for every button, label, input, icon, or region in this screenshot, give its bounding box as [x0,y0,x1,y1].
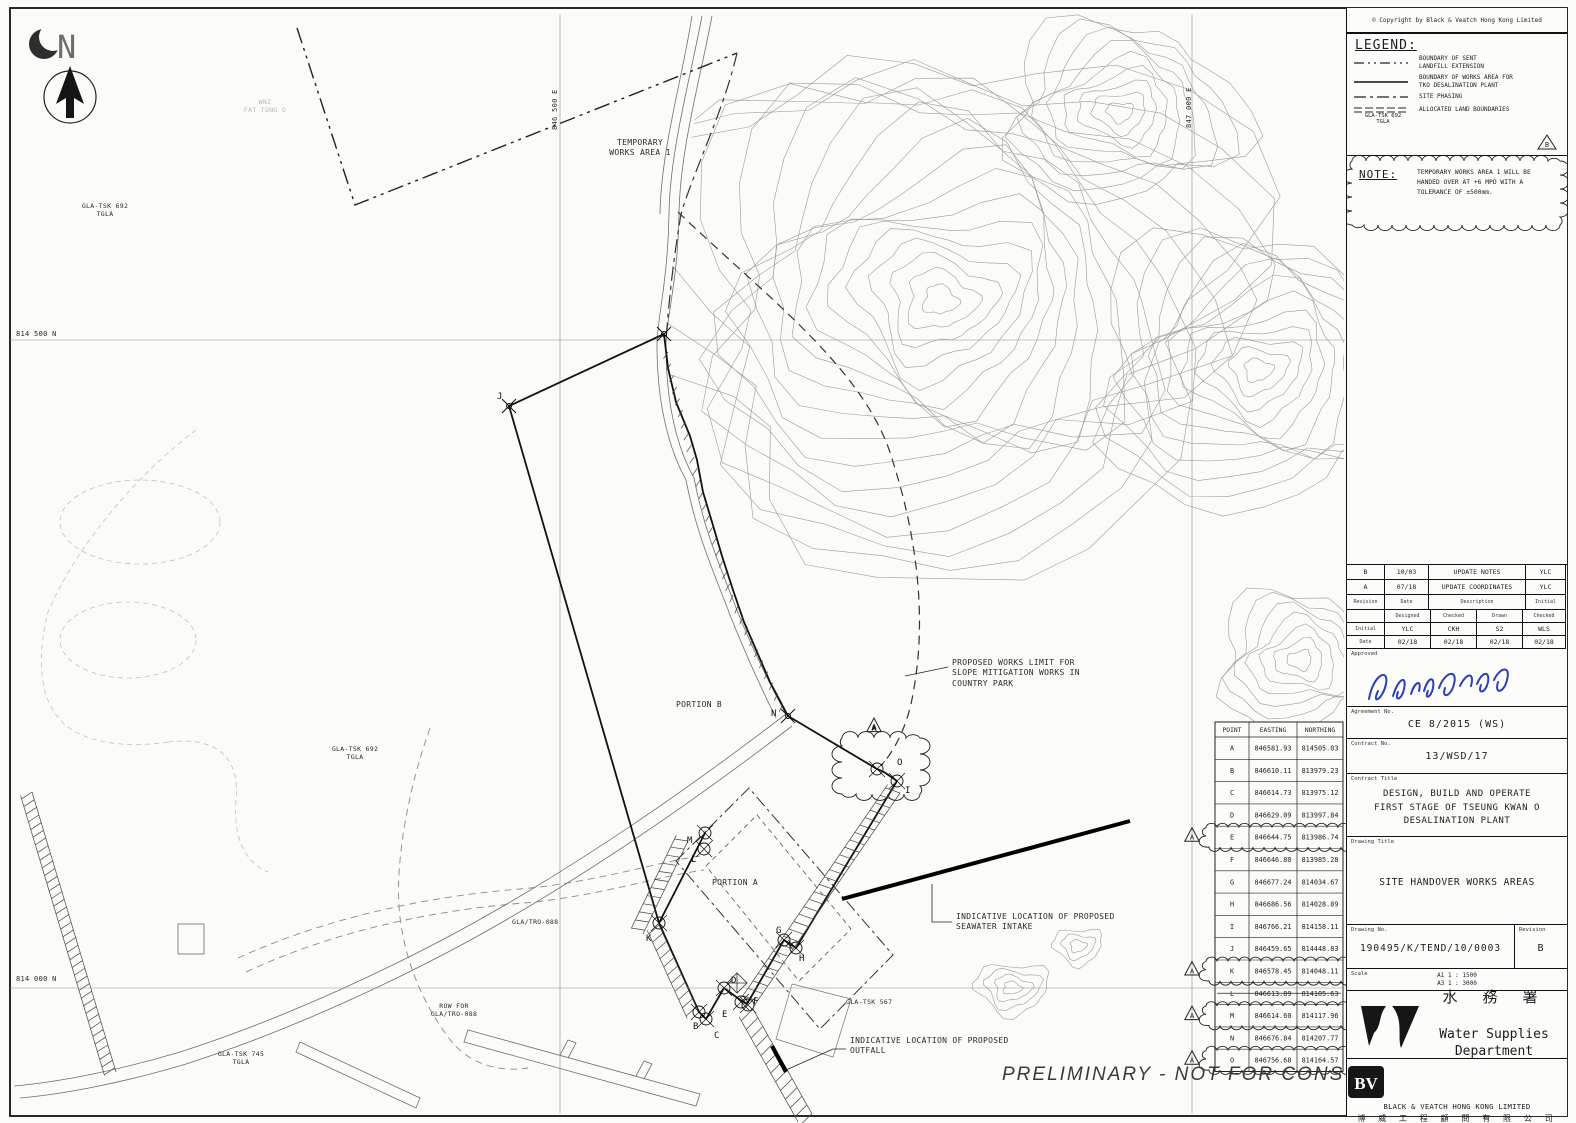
point-letter-I: I [905,786,910,796]
wsd-name: Water Supplies Department [1421,1027,1567,1061]
svg-text:J: J [1230,945,1234,953]
contract-title-section: Contract Title DESIGN, BUILD AND OPERATE… [1347,774,1567,837]
svg-text:846677.24: 846677.24 [1255,878,1292,886]
svg-text:813997.84: 813997.84 [1302,811,1339,819]
drawing-title-section: Drawing Title SITE HANDOVER WORKS AREAS [1347,837,1567,925]
dc-cell: S2 [1477,623,1523,636]
svg-text:A: A [1190,833,1195,842]
svg-text:846766.21: 846766.21 [1255,923,1292,931]
drawing-no-label: Drawing No. [1351,927,1387,933]
label-outfall: INDICATIVE LOCATION OF PROPOSED OUTFALL [850,1036,1009,1057]
survey-grid [10,14,1345,1114]
legend-item-label: BOUNDARY OF WORKS AREA FOR TKO DESALINAT… [1419,74,1513,89]
note-section: NOTE: TEMPORARY WORKS AREA 1 WILL BE HAN… [1347,156,1567,234]
svg-text:A: A [1190,966,1195,975]
legend-item-label: ALLOCATED LAND BOUNDARIES [1419,106,1509,114]
svg-text:A: A [1230,744,1234,752]
drawing-no-section: Drawing No. 190495/K/TEND/10/0003 Revisi… [1347,925,1567,969]
dc-header: Drawn [1477,610,1523,623]
svg-text:D: D [1230,811,1234,819]
rev-header: Date [1385,595,1429,610]
agreement-no: CE 8/2015 (WS) [1347,719,1567,730]
svg-text:846644.75: 846644.75 [1255,834,1292,842]
coast-roads [14,16,792,1098]
legend-item-label: BOUNDARY OF SENT LANDFILL EXTENSION [1419,55,1484,70]
dc-header: Checked [1431,610,1477,623]
rev-cell: YLC [1526,580,1566,595]
point-letter-C: C [714,1031,719,1041]
dash-dot-swatch [1353,93,1409,101]
revision-triangle-icon: B [1537,133,1557,151]
indicative-leaders [772,667,1130,1072]
blank-section [1347,234,1567,564]
svg-text:M: M [1230,1012,1234,1020]
point-letter-B: B [693,1022,698,1032]
svg-text:E: E [1230,834,1234,842]
svg-text:846614.73: 846614.73 [1255,789,1292,797]
agreement-label: Agreement No. [1351,709,1394,715]
wsd-chinese: 水 務 署 [1421,988,1567,1008]
svg-text:813985.28: 813985.28 [1302,856,1339,864]
site-plan-map: A POINTEASTINGNORTHINGA846581.93814505.0… [0,0,1576,1123]
svg-text:813986.74: 813986.74 [1302,834,1339,842]
svg-text:814448.83: 814448.83 [1302,945,1339,953]
dc-header: Checked [1523,610,1566,623]
point-letter-D: D [731,976,736,986]
svg-text:846610.11: 846610.11 [1255,767,1292,775]
point-letter-G: G [776,926,781,936]
label-seawater-intake: INDICATIVE LOCATION OF PROPOSED SEAWATER… [956,912,1115,933]
svg-text:NORTHING: NORTHING [1305,727,1336,734]
svg-text:G: G [1230,878,1234,886]
svg-text:846676.84: 846676.84 [1255,1034,1292,1042]
legend-item: SITE PHASING [1353,93,1567,101]
coordinate-table: POINTEASTINGNORTHINGA846581.93814505.03B… [1185,722,1359,1074]
legend-item-label: SITE PHASING [1419,93,1462,101]
grid-label-847000e: 847 000 E [1185,87,1194,128]
dc-label: Initial [1347,623,1385,636]
title-block-panel: © Copyright by Black & Veatch Hong Kong … [1346,8,1567,1116]
legend-item: BOUNDARY OF WORKS AREA FOR TKO DESALINAT… [1353,74,1567,89]
svg-text:814034.67: 814034.67 [1302,878,1339,886]
agreement-section: Agreement No. CE 8/2015 (WS) [1347,707,1567,739]
label-gla-tro-088: GLA/TRO-088 [512,918,558,926]
svg-text:EASTING: EASTING [1260,727,1287,734]
contract-no-section: Contract No. 13/WSD/17 [1347,739,1567,774]
rev-cell: UPDATE COORDINATES [1429,580,1526,595]
contract-no: 13/WSD/17 [1347,751,1567,762]
rev-header: Description [1429,595,1526,610]
svg-text:L: L [1230,990,1234,998]
point-letter-E: E [722,1010,727,1020]
label-gla692-topleft: GLA-TSK 692 TGLA [60,202,150,219]
label-temporary-works-area: TEMPORARY WORKS AREA 1 [585,138,695,159]
note-title: NOTE: [1359,168,1397,181]
svg-text:813975.12: 813975.12 [1302,789,1339,797]
point-letter-K: K [646,934,651,944]
dc-cell: 02/18 [1477,636,1523,649]
revision-label: Revision [1519,927,1546,933]
drawing-no: 190495/K/TEND/10/0003 [1347,943,1514,954]
revision-entries-table: B 10/03 UPDATE NOTES YLC A 07/18 UPDATE … [1347,564,1567,610]
wsd-section: 水 務 署 Water Supplies Department [1347,991,1567,1059]
grid-label-814000n: 814 000 N [16,975,57,984]
dc-cell: WLS [1523,623,1566,636]
legend-title: LEGEND: [1355,38,1567,53]
svg-text:814207.77: 814207.77 [1302,1034,1339,1042]
svg-text:814105.63: 814105.63 [1302,990,1339,998]
wsd-logo [1359,1000,1421,1050]
legend-section: LEGEND: BOUNDARY OF SENT LANDFILL EXTENS… [1347,38,1567,156]
svg-text:A: A [872,723,877,732]
svg-text:846614.60: 846614.60 [1255,1012,1292,1020]
approved-label: Approved [1351,651,1378,657]
north-letter: N [57,28,76,66]
dc-cell: CKH [1431,623,1477,636]
rev-cell: 10/03 [1385,565,1429,580]
rev-cell: 07/18 [1385,580,1429,595]
grid-label-814500n: 814 500 N [16,330,57,339]
svg-text:814505.03: 814505.03 [1302,744,1339,752]
drawing-title: SITE HANDOVER WORKS AREAS [1347,877,1567,888]
svg-text:846629.09: 846629.09 [1255,811,1292,819]
approved-section: Approved [1347,649,1567,707]
svg-text:846646.80: 846646.80 [1255,856,1292,864]
dc-cell: 02/18 [1523,636,1566,649]
svg-text:814028.89: 814028.89 [1302,901,1339,909]
copyright-bar: © Copyright by Black & Veatch Hong Kong … [1347,8,1567,34]
rev-cell: A [1347,580,1385,595]
svg-text:814158.11: 814158.11 [1302,923,1339,931]
bv-chinese: 博 威 工 程 顧 問 有 限 公 司 [1347,1113,1567,1123]
label-gla-tsk-745: GLA-TSK 745 TGLA [196,1050,286,1067]
survey-point-markers [502,327,905,1027]
label-row-for-gla-tro: ROW FOR GLA/TRO-088 [408,1002,500,1019]
dc-cell: 02/18 [1431,636,1477,649]
point-letter-N: N [771,709,776,719]
dc-cell: YLC [1385,623,1431,636]
dash-dot-dot-swatch [1353,59,1409,67]
svg-text:B: B [1545,141,1549,149]
svg-text:POINT: POINT [1223,727,1242,734]
solid-line-swatch [1353,78,1409,86]
svg-text:C: C [1230,789,1234,797]
drawing-title-label: Drawing Title [1351,839,1394,845]
drawing-sheet: A POINTEASTINGNORTHINGA846581.93814505.0… [0,0,1576,1123]
svg-text:846581.93: 846581.93 [1255,744,1292,752]
approval-signature [1361,659,1551,705]
label-portion-a: PORTION A [712,878,758,888]
designer-table: Designed Checked Drawn Checked Initial Y… [1347,610,1567,649]
svg-text:814117.96: 814117.96 [1302,1012,1339,1020]
point-letter-F: F [753,997,758,1007]
rev-cell: UPDATE NOTES [1429,565,1526,580]
point-letter-O: O [897,758,902,768]
label-fat-tong-o: WNZ FAT TONG O [210,98,320,115]
svg-text:A: A [1190,1011,1195,1020]
point-letter-J: J [497,392,502,402]
dc-label: Date [1347,636,1385,649]
svg-text:B: B [1230,767,1234,775]
dc-cell [1347,610,1385,623]
bv-section: BV BLACK & VEATCH HONG KONG LIMITED 博 威 … [1347,1065,1567,1123]
bv-logo: BV [1347,1065,1385,1099]
rev-header: Revision [1347,595,1385,610]
rev-cell: YLC [1526,565,1566,580]
svg-text:846686.56: 846686.56 [1255,901,1292,909]
dc-cell: 02/18 [1385,636,1431,649]
contract-title: DESIGN, BUILD AND OPERATE FIRST STAGE OF… [1347,788,1567,829]
label-gla-tsk-567: GLA-TSK 567 [846,998,892,1006]
legend-item: BOUNDARY OF SENT LANDFILL EXTENSION [1353,55,1567,70]
dc-header: Designed [1385,610,1431,623]
contour-lines [586,15,1463,733]
note-text: TEMPORARY WORKS AREA 1 WILL BE HANDED OV… [1417,168,1555,197]
svg-text:BV: BV [1354,1074,1378,1093]
rev-header: Initial [1526,595,1566,610]
svg-text:N: N [1230,1034,1234,1042]
svg-text:I: I [1230,923,1234,931]
bv-name: BLACK & VEATCH HONG KONG LIMITED [1347,1102,1567,1111]
svg-text:846459.65: 846459.65 [1255,945,1292,953]
svg-text:846613.89: 846613.89 [1255,990,1292,998]
svg-text:814048.11: 814048.11 [1302,967,1339,975]
svg-text:846578.45: 846578.45 [1255,967,1292,975]
revision-clouds: A [832,718,930,800]
svg-text:813979.23: 813979.23 [1302,767,1339,775]
point-letter-H: H [799,954,804,964]
existing-features-dashed [41,430,268,872]
wsd-text: 水 務 署 Water Supplies Department [1421,972,1567,1078]
contract-no-label: Contract No. [1351,741,1391,747]
point-letter-L: L [691,855,696,865]
label-works-limit: PROPOSED WORKS LIMIT FOR SLOPE MITIGATIO… [952,658,1080,689]
svg-text:H: H [1230,901,1234,909]
point-letter-M: M [687,836,692,846]
svg-text:F: F [1230,856,1234,864]
grid-label-846500e: 846 500 E [551,89,560,130]
label-gla692-mid: GLA-TSK 692 TGLA [310,745,400,762]
island-contours [972,929,1102,1019]
works-area-boundary [509,334,897,1019]
revision-value: B [1515,943,1567,954]
contract-title-label: Contract Title [1351,776,1397,782]
label-portion-b: PORTION B [676,700,722,710]
rev-cell: B [1347,565,1385,580]
